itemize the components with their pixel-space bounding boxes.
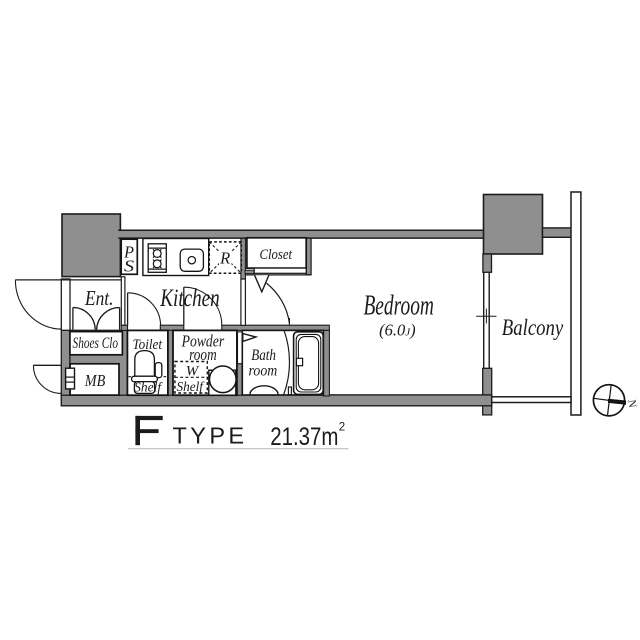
svg-text:Shelf: Shelf [176,380,204,395]
svg-text:R: R [219,249,230,268]
svg-text:(6.0J): (6.0J) [379,321,416,340]
svg-text:2: 2 [339,422,345,434]
svg-text:room: room [189,345,217,364]
svg-text:S: S [124,256,135,275]
svg-text:MB: MB [84,371,106,390]
svg-text:room: room [249,362,278,379]
svg-text:Kitchen: Kitchen [159,283,219,312]
svg-text:N: N [625,399,638,408]
svg-text:Bedroom: Bedroom [363,291,434,322]
svg-text:Ent.: Ent. [84,286,113,310]
svg-text:Shelf: Shelf [134,380,163,395]
svg-text:Closet: Closet [260,247,293,263]
svg-text:Balcony: Balcony [502,315,564,340]
svg-text:Toilet: Toilet [133,337,163,353]
svg-text:W: W [186,363,200,379]
svg-text:TYPE: TYPE [173,422,248,448]
svg-text:Shoes Clo: Shoes Clo [73,335,119,352]
svg-text:21.37m: 21.37m [270,423,338,451]
